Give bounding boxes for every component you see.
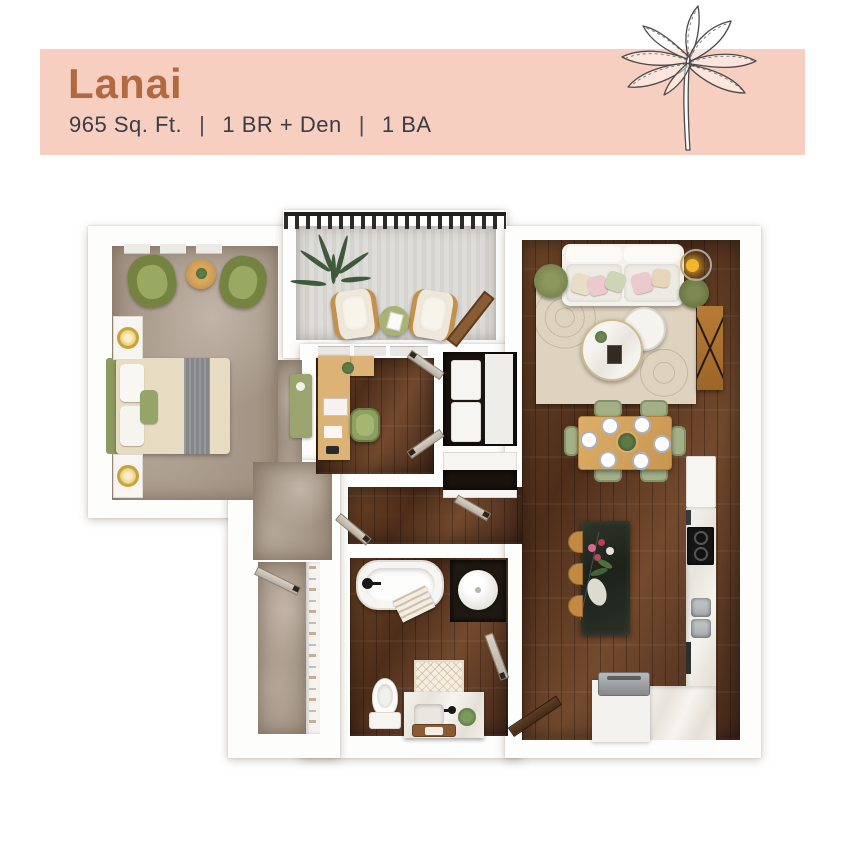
area-spec: 965 Sq. Ft. xyxy=(69,112,182,138)
spec-divider: | xyxy=(199,112,205,138)
table-lamp xyxy=(117,465,139,487)
patio-chair-cushion xyxy=(339,293,370,332)
sofa-back-cushion xyxy=(566,246,622,262)
bed-accent-pillow xyxy=(140,390,158,424)
kitchen-sink xyxy=(691,619,711,638)
place-setting xyxy=(653,435,671,453)
table-lamp xyxy=(117,327,139,349)
bath-stool xyxy=(412,724,456,737)
toilet-bowl xyxy=(372,678,398,716)
vanity-plant xyxy=(458,708,476,726)
bar-stool xyxy=(568,563,583,585)
office-chair xyxy=(350,408,380,442)
patio-side-table xyxy=(379,306,409,336)
place-setting xyxy=(580,431,598,449)
bedroom-side-table xyxy=(186,259,216,289)
tub-faucet-spout xyxy=(372,582,381,585)
place-setting xyxy=(633,416,651,434)
dining-chair xyxy=(670,426,686,456)
toilet-tank xyxy=(369,712,401,729)
countertop-appliance xyxy=(598,672,650,696)
flower-stem xyxy=(590,566,609,577)
vessel-sink xyxy=(458,570,498,610)
flower xyxy=(606,547,614,555)
potted-plant xyxy=(196,268,207,279)
hall-carpet-floor xyxy=(253,462,332,560)
place-setting xyxy=(599,451,617,469)
toilet-seat xyxy=(377,684,393,708)
bedroom-window xyxy=(124,244,150,254)
unit-specs: 965 Sq. Ft. | 1 BR + Den | 1 BA xyxy=(69,112,432,138)
pouf xyxy=(534,264,568,298)
closet-shelf-items xyxy=(309,566,316,730)
dining-chair xyxy=(564,426,579,456)
patio-chair xyxy=(329,287,381,341)
media-console xyxy=(697,306,723,390)
bed-throw-blanket xyxy=(184,358,210,454)
sink-drain xyxy=(475,587,481,593)
office-chair-cushion xyxy=(356,414,374,436)
washer xyxy=(451,360,481,400)
desk-papers xyxy=(324,426,342,438)
throw-pillow xyxy=(651,268,671,288)
bed xyxy=(116,358,230,454)
place-setting xyxy=(632,452,650,470)
bathroom-spec: 1 BA xyxy=(382,112,432,138)
table-plant xyxy=(595,331,607,343)
den-glass-door xyxy=(354,346,386,356)
linen-closet-shelf xyxy=(443,470,517,490)
cooktop xyxy=(687,527,714,565)
pouf xyxy=(679,278,709,308)
page-title: Lanai xyxy=(68,60,183,108)
oven-handle xyxy=(686,510,691,525)
bar-stool xyxy=(568,531,583,553)
desk-item xyxy=(326,446,339,454)
dryer xyxy=(451,402,481,442)
floor-plan xyxy=(85,212,761,758)
armchair-cushion xyxy=(226,263,260,301)
kitchen-counter-bottom xyxy=(648,686,716,740)
balcony-railing xyxy=(284,212,506,229)
vanity-faucet-spout xyxy=(444,709,451,712)
bedroom-dresser xyxy=(290,374,312,438)
vanity-nook xyxy=(450,560,506,622)
console-brace xyxy=(697,306,723,390)
kitchen-island xyxy=(581,521,630,635)
flower xyxy=(588,544,596,552)
dishwasher-handle xyxy=(686,642,691,674)
folded-towel xyxy=(425,727,443,735)
vanity-sink xyxy=(414,704,444,726)
floor-lamp-light xyxy=(686,259,699,272)
kitchen-sink xyxy=(691,598,711,617)
desk-plant xyxy=(342,362,354,374)
bar-stool xyxy=(568,595,583,617)
flower xyxy=(598,539,605,546)
armchair-cushion xyxy=(134,263,169,302)
sofa-back-cushion xyxy=(624,246,680,262)
banana-palm-sketch-icon xyxy=(598,0,773,152)
place-setting xyxy=(601,417,619,435)
spec-divider: | xyxy=(359,112,365,138)
bed-headboard xyxy=(106,358,116,454)
coffee-table xyxy=(581,319,643,381)
refrigerator xyxy=(686,456,716,508)
table-centerpiece xyxy=(618,433,636,451)
bedroom-window xyxy=(196,244,222,254)
bedroom-spec: 1 BR + Den xyxy=(222,112,341,138)
bath-mat xyxy=(414,660,464,694)
patio-chair-cushion xyxy=(417,294,449,334)
den-glass-door xyxy=(318,346,350,356)
laundry-closet-shelf xyxy=(485,354,513,444)
bedroom-window xyxy=(160,244,186,254)
laptop xyxy=(323,398,348,416)
appliance-handle xyxy=(607,676,641,680)
cutting-board xyxy=(584,576,610,608)
closet-shelving xyxy=(306,562,320,734)
book xyxy=(607,345,622,364)
dresser-decor xyxy=(296,382,305,391)
book xyxy=(386,312,404,332)
